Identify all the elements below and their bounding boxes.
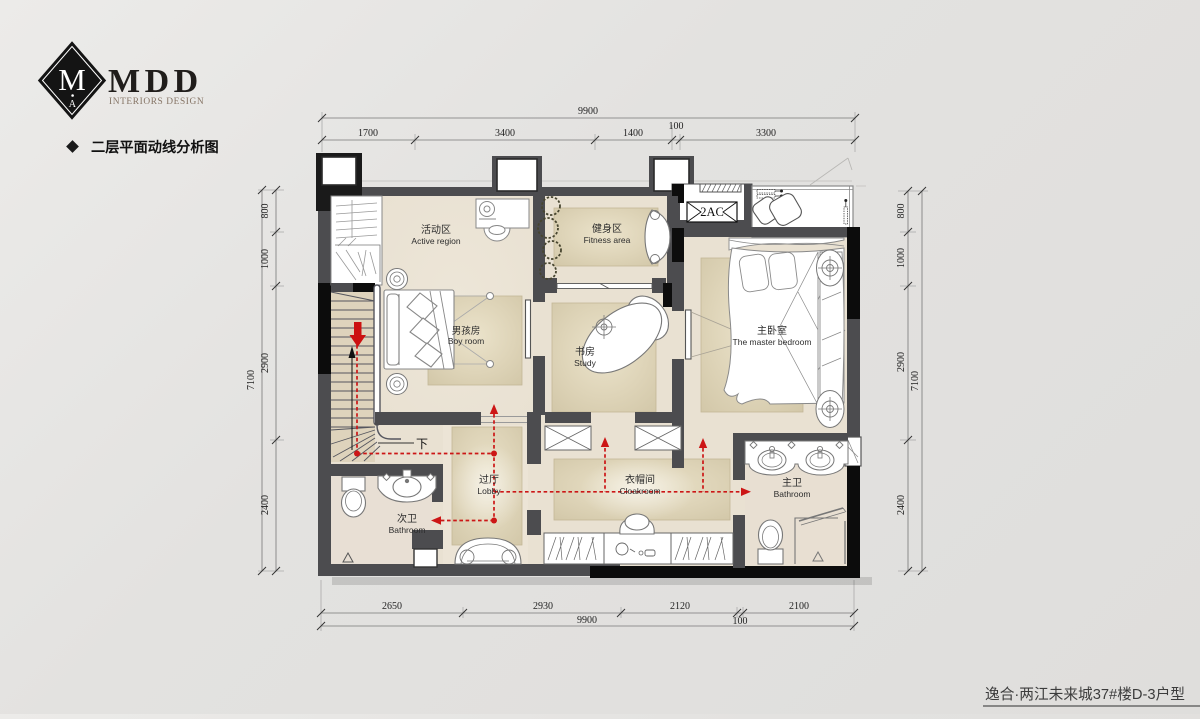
- svg-text:Fitness area: Fitness area: [584, 235, 631, 245]
- svg-text:Active region: Active region: [411, 236, 460, 246]
- svg-text:Cloakroom: Cloakroom: [619, 486, 660, 496]
- svg-text:9900: 9900: [578, 106, 598, 117]
- svg-text:活动区: 活动区: [421, 224, 451, 236]
- svg-text:次卫: 次卫: [397, 512, 417, 525]
- svg-text:Bathroom: Bathroom: [774, 489, 811, 499]
- svg-text:1000: 1000: [896, 248, 907, 268]
- svg-text:二层平面动线分析图: 二层平面动线分析图: [91, 139, 219, 156]
- svg-text:2930: 2930: [533, 601, 553, 612]
- svg-text:1400: 1400: [623, 128, 643, 139]
- svg-text:2400: 2400: [896, 495, 907, 515]
- svg-text:Lobby: Lobby: [477, 486, 501, 496]
- svg-text:下: 下: [416, 437, 428, 451]
- svg-text:2900: 2900: [896, 352, 907, 372]
- svg-text:3400: 3400: [495, 128, 515, 139]
- svg-text:主卧室: 主卧室: [757, 324, 787, 337]
- svg-text:7100: 7100: [910, 371, 921, 391]
- svg-text:100: 100: [733, 616, 748, 627]
- svg-text:800: 800: [260, 204, 271, 219]
- svg-text:2100: 2100: [789, 601, 809, 612]
- svg-text:A: A: [69, 99, 77, 110]
- svg-text:逸合·两江未来城37#楼D-3户型: 逸合·两江未来城37#楼D-3户型: [985, 686, 1185, 703]
- svg-text:3300: 3300: [756, 128, 776, 139]
- svg-text:1000: 1000: [260, 249, 271, 269]
- svg-text:书房: 书房: [575, 345, 595, 358]
- svg-text:2400: 2400: [260, 495, 271, 515]
- svg-text:衣帽间: 衣帽间: [625, 473, 655, 486]
- svg-text:2900: 2900: [260, 353, 271, 373]
- svg-text:The master bedroom: The master bedroom: [733, 337, 812, 347]
- svg-text:健身区: 健身区: [592, 222, 622, 235]
- svg-text:Boy room: Boy room: [448, 336, 484, 346]
- svg-text:主卫: 主卫: [782, 477, 802, 489]
- svg-text:INTERIORS DESIGN: INTERIORS DESIGN: [109, 97, 204, 107]
- svg-text:2AC: 2AC: [700, 205, 724, 219]
- svg-text:MDD: MDD: [108, 63, 203, 100]
- svg-text:M: M: [58, 62, 86, 97]
- svg-text:100: 100: [669, 121, 684, 132]
- svg-text:2120: 2120: [670, 601, 690, 612]
- svg-text:9900: 9900: [577, 615, 597, 626]
- svg-text:过厅: 过厅: [479, 473, 499, 486]
- svg-text:2650: 2650: [382, 601, 402, 612]
- svg-text:1700: 1700: [358, 128, 378, 139]
- svg-text:Bathroom: Bathroom: [389, 525, 426, 535]
- svg-text:Study: Study: [574, 358, 596, 368]
- svg-text:800: 800: [896, 204, 907, 219]
- svg-text:7100: 7100: [246, 370, 257, 390]
